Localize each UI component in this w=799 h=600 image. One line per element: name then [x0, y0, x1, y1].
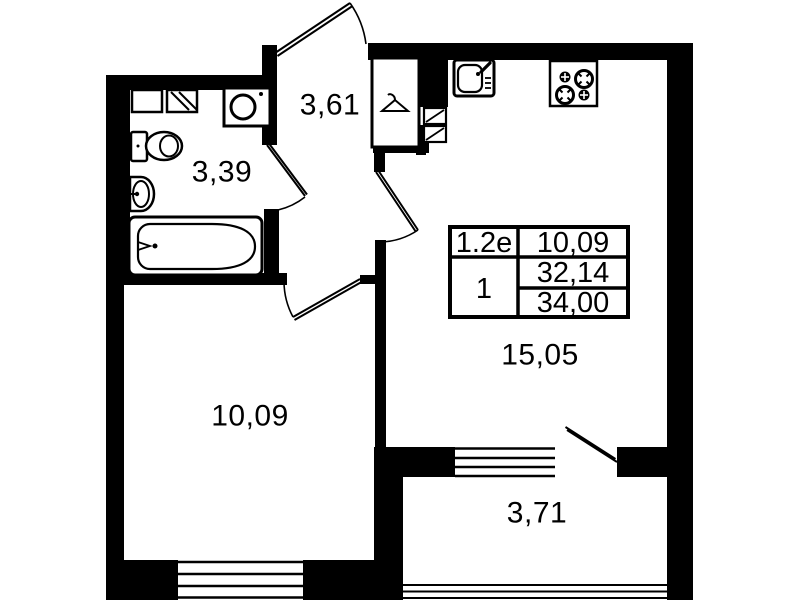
room-count-cell: 1: [476, 273, 492, 305]
room-label-kitchen-living: 15,05: [501, 339, 579, 372]
bathroom-vent-icon: [167, 90, 197, 112]
room-label-balcony: 3,71: [507, 497, 567, 530]
washing-machine-icon: [224, 88, 270, 126]
vent-hatch-icon: [424, 108, 446, 142]
floor-plan: 3,61 3,39 15,05 10,09 3,71 1.2e 1 10,09 …: [0, 0, 799, 600]
wardrobe-icon: [372, 58, 419, 147]
room-label-bathroom: 3,39: [192, 156, 252, 189]
area-cell: 32,14: [537, 257, 610, 289]
flat-type-cell: 1.2e: [456, 227, 512, 259]
total-area-cell: 34,00: [537, 287, 610, 319]
bathroom-cabinet-icon: [132, 90, 162, 112]
living-area-cell: 10,09: [537, 227, 610, 259]
wall-right: [667, 43, 693, 600]
wall-wardrobe-stub: [374, 150, 385, 172]
wall-vent-shaft: [419, 43, 448, 107]
wall-bottom-left: [106, 560, 178, 600]
room-label-bedroom: 10,09: [211, 400, 289, 433]
wall-balcony-top-right: [617, 447, 667, 477]
info-table: 1.2e 1 10,09 32,14 34,00: [450, 227, 628, 319]
toilet-icon: [131, 132, 182, 161]
wall-bathroom-right-lower: [264, 209, 279, 283]
kitchen-sink-icon: [454, 60, 494, 96]
bathtub-icon: [129, 217, 262, 275]
wall-bottom-mid: [303, 560, 403, 600]
wall-left-lining: [106, 75, 130, 283]
room-label-hallway: 3,61: [300, 89, 360, 122]
stove-icon: [550, 61, 597, 106]
floor-plan-canvas: 3,61 3,39 15,05 10,09 3,71 1.2e 1 10,09 …: [0, 0, 799, 600]
wall-interior-vertical: [375, 240, 386, 447]
